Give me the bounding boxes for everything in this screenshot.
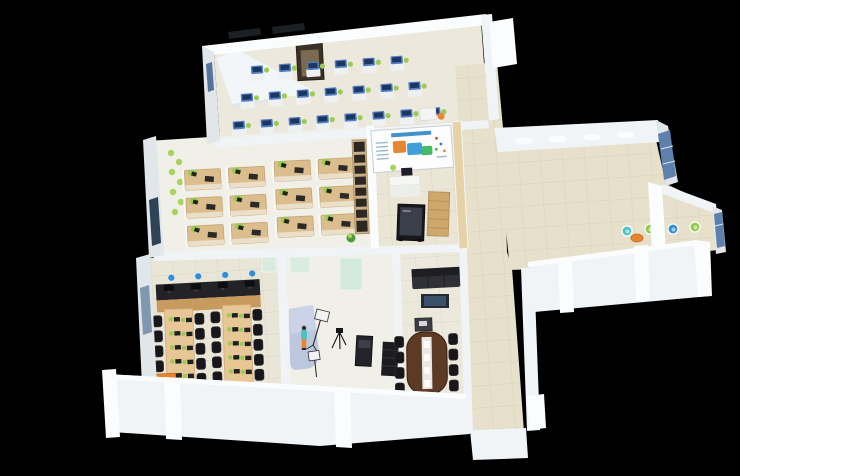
table-item	[240, 355, 251, 360]
ws-desk	[318, 212, 358, 236]
figure-pants	[302, 339, 307, 348]
ladder-bookshelf	[352, 140, 369, 234]
black-chair	[196, 343, 205, 354]
black-chair	[212, 342, 221, 353]
figure-shirt	[301, 330, 307, 339]
sofa	[411, 267, 460, 289]
ceiling-light	[617, 132, 635, 138]
black-chair	[153, 316, 162, 327]
glass-partition	[340, 258, 362, 290]
ws-desk	[274, 215, 314, 239]
office-floorplan-3d-render	[0, 0, 846, 476]
table-item	[228, 369, 239, 374]
ws-desk	[227, 193, 267, 217]
pillar	[634, 245, 650, 301]
table-item	[228, 355, 239, 360]
kiosk-display	[397, 204, 425, 242]
table-item	[240, 341, 251, 346]
table-item	[182, 345, 193, 350]
ws-desk	[271, 159, 311, 183]
wall-corridor-top	[489, 18, 517, 68]
figure-head	[302, 326, 306, 330]
lounge-chair	[690, 222, 700, 232]
info-banner	[371, 125, 454, 172]
lounge-chair	[668, 224, 678, 234]
table-item	[170, 359, 181, 364]
table-item	[227, 327, 238, 332]
pillar	[558, 259, 574, 313]
black-chair	[449, 364, 458, 375]
equipment-desk	[355, 336, 373, 367]
banner-infographic-blue	[407, 142, 423, 155]
banner-infographic-orange	[393, 140, 407, 153]
ceiling-light	[549, 136, 567, 142]
banner-infographic-green	[421, 146, 433, 156]
pillar	[334, 387, 352, 448]
black-chair	[253, 324, 262, 335]
table-item	[227, 313, 238, 318]
lectern	[415, 318, 432, 332]
black-chair	[211, 327, 220, 338]
table-item	[170, 345, 181, 350]
black-chair	[395, 352, 404, 363]
ws-desk	[182, 168, 222, 192]
wall-corridor-front	[470, 428, 528, 460]
table-item	[182, 359, 193, 364]
stool	[168, 274, 176, 282]
table-item	[181, 317, 192, 322]
black-chair	[195, 313, 204, 324]
black-chair	[195, 328, 204, 339]
black-chair	[395, 367, 404, 378]
black-chair	[153, 331, 162, 342]
table-item	[241, 369, 252, 374]
ws-desk	[185, 223, 225, 247]
ws-desk	[226, 165, 266, 189]
stool	[221, 271, 229, 279]
screenshot-canvas	[0, 0, 846, 476]
table-item	[169, 331, 180, 336]
glass-partition	[262, 257, 276, 272]
ws-desk	[273, 187, 313, 211]
table-item	[181, 331, 192, 336]
lounge-chair	[622, 226, 632, 236]
ws-desk	[315, 157, 355, 181]
table-item	[169, 317, 180, 322]
black-chair	[211, 312, 220, 323]
black-chair	[196, 358, 205, 369]
glass-partition	[290, 257, 310, 273]
ceiling-light	[583, 134, 601, 140]
table-item	[239, 327, 250, 332]
pillar	[164, 377, 182, 440]
black-chair	[449, 380, 458, 391]
black-chair	[212, 357, 221, 368]
table-item	[228, 341, 239, 346]
tv-cabinet	[421, 294, 449, 308]
ws-desk	[317, 185, 357, 209]
ceiling-light	[515, 138, 533, 144]
black-chair	[254, 339, 263, 350]
black-chair	[449, 349, 458, 360]
stool	[248, 270, 256, 278]
wood-cabinet	[427, 192, 450, 237]
black-chair	[395, 336, 404, 347]
ws-desk	[183, 196, 223, 220]
black-chair	[254, 354, 263, 365]
stool	[194, 273, 202, 281]
black-chair	[255, 369, 264, 380]
tv-screen	[424, 296, 446, 306]
table-item	[183, 373, 194, 378]
ws-desk	[229, 221, 269, 245]
round-table	[631, 234, 643, 242]
black-chair	[448, 333, 457, 344]
wall-corridor-bump	[527, 394, 546, 430]
white-right-margin	[740, 0, 846, 476]
table-item	[239, 313, 250, 318]
black-chair	[253, 309, 262, 320]
